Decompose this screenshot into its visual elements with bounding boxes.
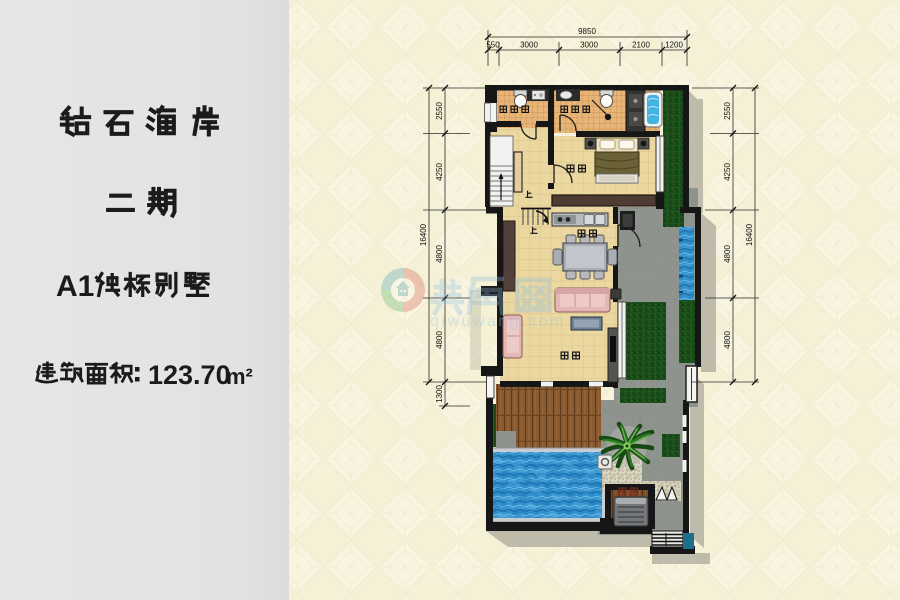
svg-text:9850: 9850 — [578, 27, 596, 36]
svg-text:4800: 4800 — [723, 245, 732, 263]
svg-text:4250: 4250 — [435, 163, 444, 181]
svg-text:A1: A1 — [56, 270, 94, 303]
svg-text:1300: 1300 — [435, 385, 444, 403]
svg-text:4800: 4800 — [435, 331, 444, 349]
svg-text:4800: 4800 — [435, 245, 444, 263]
svg-text:3000: 3000 — [580, 41, 598, 50]
svg-text:1200: 1200 — [665, 41, 683, 50]
svg-text:550: 550 — [486, 41, 500, 50]
svg-text:m²: m² — [226, 364, 253, 389]
svg-text:16400: 16400 — [745, 223, 754, 246]
svg-text:2550: 2550 — [723, 102, 732, 120]
svg-text:qiwuwang.com: qiwuwang.com — [430, 313, 566, 330]
svg-text:123.70: 123.70 — [148, 360, 231, 390]
svg-text:2550: 2550 — [435, 102, 444, 120]
svg-text:2100: 2100 — [632, 41, 650, 50]
svg-text:16400: 16400 — [419, 223, 428, 246]
svg-text:4250: 4250 — [723, 163, 732, 181]
svg-text:3000: 3000 — [520, 41, 538, 50]
svg-text:4800: 4800 — [723, 331, 732, 349]
